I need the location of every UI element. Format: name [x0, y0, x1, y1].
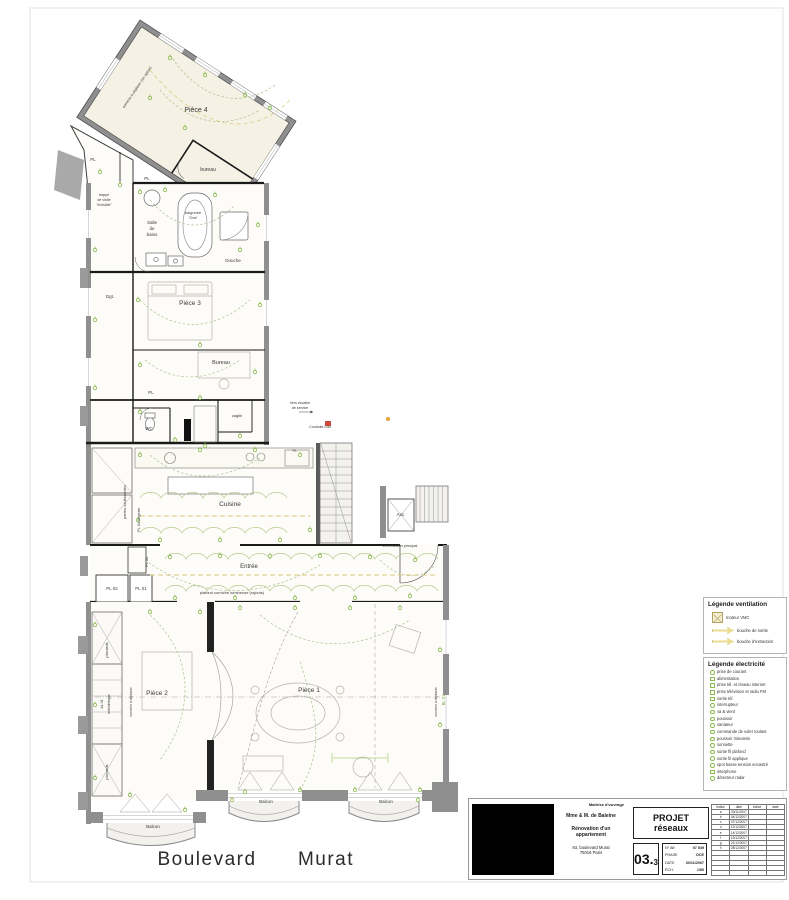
legend-item-label: interphone	[717, 770, 736, 774]
doorbell-icon	[710, 743, 715, 748]
closet-label: bibliothèque	[107, 694, 111, 713]
legend-item: va & vient	[710, 710, 786, 715]
legend-item: prise de courant	[710, 670, 786, 675]
sheet-number: 03.	[634, 851, 653, 867]
switch-icon	[710, 703, 715, 708]
legend-item-label: commande de volet roulant	[717, 730, 766, 734]
stairs	[299, 411, 448, 544]
socket-icon	[710, 670, 715, 675]
client-name: Mme & M. de Baleine	[557, 813, 625, 819]
legend-item-label: spot basse tension encastré	[717, 763, 768, 767]
document-title-box: PROJET réseaux	[633, 807, 709, 839]
room-label: Balcon	[146, 824, 160, 829]
legend-item-label: interrupteur	[717, 703, 738, 707]
tv-radio-socket-icon	[710, 690, 715, 695]
room-label: Balcon	[259, 799, 273, 804]
legend-item: sonnette	[710, 743, 786, 748]
legend-item: bouche de sortie	[712, 627, 786, 634]
sheet-info-box: N° Aff. 07 549 PHASE DCE DATE 30/11/2007…	[662, 843, 707, 875]
info-value: 1/50	[697, 868, 704, 872]
legend-item-label: prise de courant	[717, 670, 746, 674]
vent-outlet-icon	[386, 417, 390, 421]
ceiling-light-outlet-icon	[710, 750, 715, 755]
drawing-sheet: Pièce 4 bureau corniche à déplacer (en o…	[0, 0, 789, 900]
info-value: DCE	[696, 853, 704, 857]
legend-item: poussoir	[710, 717, 786, 722]
legend-ventilation: Légende ventilation moteur VMC bouche de…	[703, 597, 787, 654]
legend-item-label: bouche de sortie	[737, 628, 768, 633]
air-extraction-icon	[712, 638, 734, 645]
project-title: appartement	[557, 832, 625, 838]
room-label: Pièce 1	[298, 687, 320, 694]
annotation-label: corniche à déplacer	[129, 686, 133, 716]
closet-label: PL 04 lingerie	[136, 507, 141, 532]
annotation-label: "invisible"	[96, 203, 112, 207]
legend-item-label: bouche d'extraction	[737, 639, 773, 644]
two-way-switch-icon	[710, 710, 715, 715]
room-label: bureau	[200, 167, 216, 173]
legend-item-label: va & vient	[717, 710, 735, 714]
info-value: 30/11/2007	[686, 861, 704, 865]
room-label: Cuisine	[219, 501, 241, 508]
phone-network-socket-icon	[710, 683, 715, 688]
recessed-spot-icon	[710, 763, 715, 768]
architect-logo	[472, 804, 554, 875]
info-label: DATE	[665, 861, 675, 865]
push-button-icon	[710, 717, 715, 722]
radar-detector-icon	[710, 776, 715, 781]
legend-item-label: variateur	[717, 723, 733, 727]
room-label: Salle	[147, 220, 158, 225]
dimmer-icon	[710, 723, 715, 728]
legend-item: sortie tél	[710, 697, 786, 702]
annotation-label: vers escalier principal	[383, 544, 418, 548]
legend-item: prise tél. et réseau internet	[710, 683, 786, 688]
document-subject: réseaux	[654, 823, 688, 833]
legend-item: spot basse tension encastré	[710, 763, 786, 768]
legend-item: interrupteur	[710, 703, 786, 708]
title-block: Maîtrise d'ouvrage Mme & M. de Baleine R…	[468, 798, 787, 880]
info-row: N° Aff. 07 549	[665, 846, 704, 850]
room-label: Pièce 2	[146, 690, 168, 697]
revision-table: indice date indice date a30/11/2007 b04/…	[711, 804, 785, 875]
shutter-control-icon	[710, 730, 715, 735]
legend-item-label: sonnette	[717, 743, 733, 747]
floor-plan: Pièce 4 bureau corniche à déplacer (en o…	[0, 0, 789, 900]
legend-item-label: sortie fil plafond	[717, 750, 746, 754]
legend-item: alimentation	[710, 677, 786, 682]
closet-label: PL	[148, 390, 154, 395]
info-label: PHASE	[665, 853, 678, 857]
wall-light-outlet-icon	[710, 756, 715, 761]
info-row: PHASE DCE	[665, 853, 704, 857]
client-section: Maîtrise d'ouvrage Mme & M. de Baleine R…	[557, 803, 625, 876]
legend-item-label: détecteur radar	[717, 776, 745, 780]
revision-row	[712, 871, 785, 876]
info-value: 07 549	[693, 846, 704, 850]
project-address: 75016 Paris	[557, 850, 625, 855]
room-label: Douche	[225, 258, 241, 263]
legend-item: détecteur radar	[710, 776, 786, 781]
closet-label: PL 01	[135, 586, 147, 591]
annotation-label: portes coulissantes	[122, 485, 127, 519]
annotation-label: de visite	[97, 198, 110, 202]
cellier-door	[184, 419, 191, 441]
room-label: Pièce 3	[179, 300, 201, 307]
room-label: Pièce 4	[184, 107, 207, 114]
legend-item-label: prise tél. et réseau internet	[717, 683, 765, 687]
annotation-label: Conduits Gaz	[309, 425, 331, 429]
legend-item: prise télévision et radio FM	[710, 690, 786, 695]
legend-item-label: prise télévision et radio FM	[717, 690, 766, 694]
legend-item: bouche d'extraction	[712, 638, 786, 645]
legend-electricite: Légende électricité prise de courant ali…	[703, 657, 787, 791]
closet-label: PL	[293, 448, 299, 453]
closet-label: PL	[144, 176, 150, 181]
legend-item: variateur	[710, 723, 786, 728]
document-type: PROJET	[653, 813, 689, 823]
legend-ventilation-title: Légende ventilation	[708, 601, 786, 608]
closet-label: placards	[104, 764, 109, 779]
annotation-label: corniche à déplacer	[434, 686, 438, 716]
client-role-label: Maîtrise d'ouvrage	[557, 803, 625, 808]
intercom-icon	[710, 770, 715, 775]
closet-label: PL 03	[144, 556, 149, 567]
phone-outlet-icon	[710, 697, 715, 702]
annotation-label: 'Ove'	[189, 215, 198, 220]
timer-push-button-icon	[710, 737, 715, 742]
legend-item-label: alimentation	[717, 677, 739, 681]
room-label: WC	[145, 426, 153, 431]
room-label: Bureau	[212, 360, 230, 366]
annotation-label: Vers escalier	[290, 401, 311, 405]
sheet-number-box: 03. 3	[633, 843, 659, 875]
room-label: de	[149, 226, 155, 231]
power-feed-icon	[710, 677, 715, 682]
info-label: N° Aff.	[665, 846, 675, 850]
room-label: Dgt.	[106, 294, 114, 299]
closet-label: placards	[104, 642, 109, 657]
legend-item-label: sortie fil applique	[717, 757, 748, 761]
info-row: DATE 30/11/2007	[665, 861, 704, 865]
vmc-motor-icon	[712, 612, 723, 623]
annotation-label: plafond corniche lumineuse (rajouts)	[200, 590, 265, 595]
room-label: Asc.	[397, 512, 406, 517]
closet-label: PL 02	[106, 586, 118, 591]
legend-item-label: poussoir minuterie	[717, 737, 750, 741]
sheet-index: 3	[654, 858, 658, 867]
legend-item: poussoir minuterie	[710, 737, 786, 742]
annotation-label: trappe	[99, 193, 109, 197]
annotation-label: de service	[292, 406, 308, 410]
room-label: Balcon	[379, 799, 393, 804]
legend-item: interphone	[710, 770, 786, 775]
legend-item: moteur VMC	[712, 612, 786, 623]
room-label: Entrée	[240, 564, 258, 570]
room-label: cagibi	[232, 413, 243, 418]
legend-item-label: moteur VMC	[726, 615, 750, 620]
legend-electricite-title: Légende électricité	[708, 661, 786, 668]
annotation-label: BL 01	[441, 694, 446, 705]
legend-item-label: sortie tél	[717, 697, 732, 701]
legend-item: sortie fil plafond	[710, 750, 786, 755]
closet-label: AL 01	[100, 699, 104, 708]
air-outlet-icon	[712, 627, 734, 634]
street-label: Murat	[298, 849, 354, 870]
legend-item-label: poussoir	[717, 717, 732, 721]
info-label: ÉCH.	[665, 868, 674, 872]
closet-label: PL	[90, 157, 96, 162]
info-row: ÉCH. 1/50	[665, 868, 704, 872]
legend-item: sortie fil applique	[710, 756, 786, 761]
legend-item: commande de volet roulant	[710, 730, 786, 735]
upper-block	[86, 183, 269, 445]
street-label: Boulevard	[157, 849, 256, 870]
room-label: bains	[147, 232, 159, 237]
